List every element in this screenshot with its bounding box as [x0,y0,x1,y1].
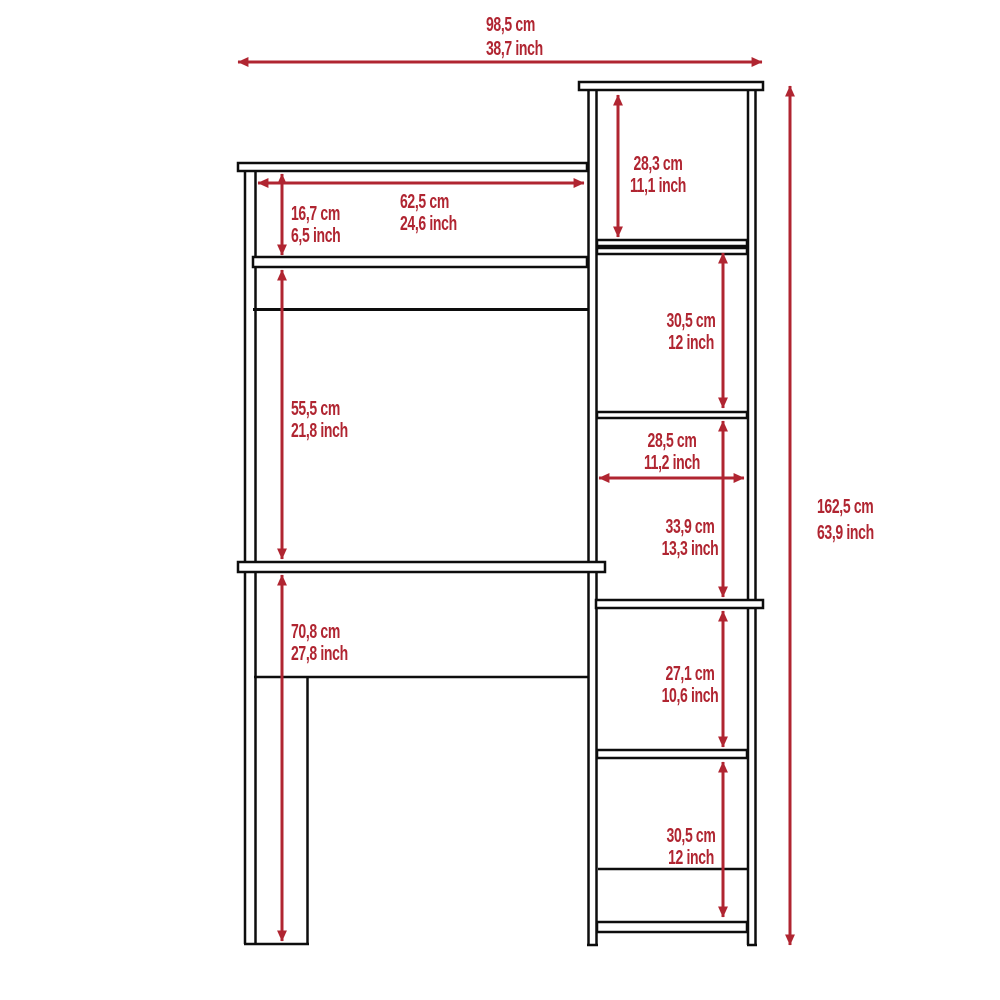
dim-value-cm: 28,5 cm [644,430,700,452]
dim-value-inch: 11,2 inch [644,452,700,474]
dim-label-top-cubby-height: 28,3 cm 11,1 inch [630,153,686,197]
bookcase-bottom-board [597,922,747,932]
dim-value-inch: 6,5 inch [291,225,340,247]
dim-value-inch: 10,6 inch [662,685,719,707]
dimension-diagram: 98,5 cm 38,7 inch 162,5 cm 63,9 inch 62,… [0,0,1000,1000]
dim-value-cm: 30,5 cm [667,825,716,847]
dim-label-third-cubby-height: 33,9 cm 13,3 inch [662,516,719,560]
bookcase-shelf-1-upper-board [597,240,747,246]
dim-label-total-height: 162,5 cm 63,9 inch [817,494,874,546]
desk-surface-board [238,562,605,572]
bookcase-shelf-3-board-with-lip [596,600,763,608]
dim-value-inch: 13,3 inch [662,538,719,560]
dim-value-inch: 38,7 inch [486,37,543,61]
dim-value-cm: 162,5 cm [817,494,874,520]
dim-value-cm: 70,8 cm [291,621,348,643]
dim-value-inch: 24,6 inch [400,213,457,235]
dim-label-desk-clearance-height: 55,5 cm 21,8 inch [291,398,348,442]
dim-value-inch: 21,8 inch [291,420,348,442]
dimension-arrows [238,62,790,945]
dim-value-inch: 12 inch [667,847,716,869]
dim-label-desk-surface-height: 70,8 cm 27,8 inch [291,621,348,665]
dim-value-inch: 11,1 inch [630,175,686,197]
dim-value-inch: 12 inch [667,332,716,354]
dim-label-bottom-cubby-height: 30,5 cm 12 inch [667,825,716,869]
dim-value-cm: 28,3 cm [630,153,686,175]
dim-label-second-cubby-height: 30,5 cm 12 inch [667,310,716,354]
hutch-top-board [238,163,587,171]
dim-label-hutch-opening-width: 62,5 cm 24,6 inch [400,191,457,235]
dim-value-cm: 98,5 cm [486,13,543,37]
dim-value-cm: 62,5 cm [400,191,457,213]
dim-value-inch: 63,9 inch [817,520,874,546]
dim-value-cm: 33,9 cm [662,516,719,538]
dim-value-cm: 16,7 cm [291,203,340,225]
dim-value-cm: 30,5 cm [667,310,716,332]
dim-value-cm: 55,5 cm [291,398,348,420]
bookcase-top-board [579,82,763,90]
dim-value-inch: 27,8 inch [291,643,348,665]
dim-label-cubby-width: 28,5 cm 11,2 inch [644,430,700,474]
dim-label-total-width: 98,5 cm 38,7 inch [486,13,543,61]
bookcase-shelf-4-board [597,750,747,758]
hutch-shelf-board [253,257,587,267]
bookcase-shelf-2-board [597,412,747,418]
dim-value-cm: 27,1 cm [662,663,719,685]
dim-label-hutch-opening-height: 16,7 cm 6,5 inch [291,203,340,247]
dim-label-fourth-cubby-height: 27,1 cm 10,6 inch [662,663,719,707]
